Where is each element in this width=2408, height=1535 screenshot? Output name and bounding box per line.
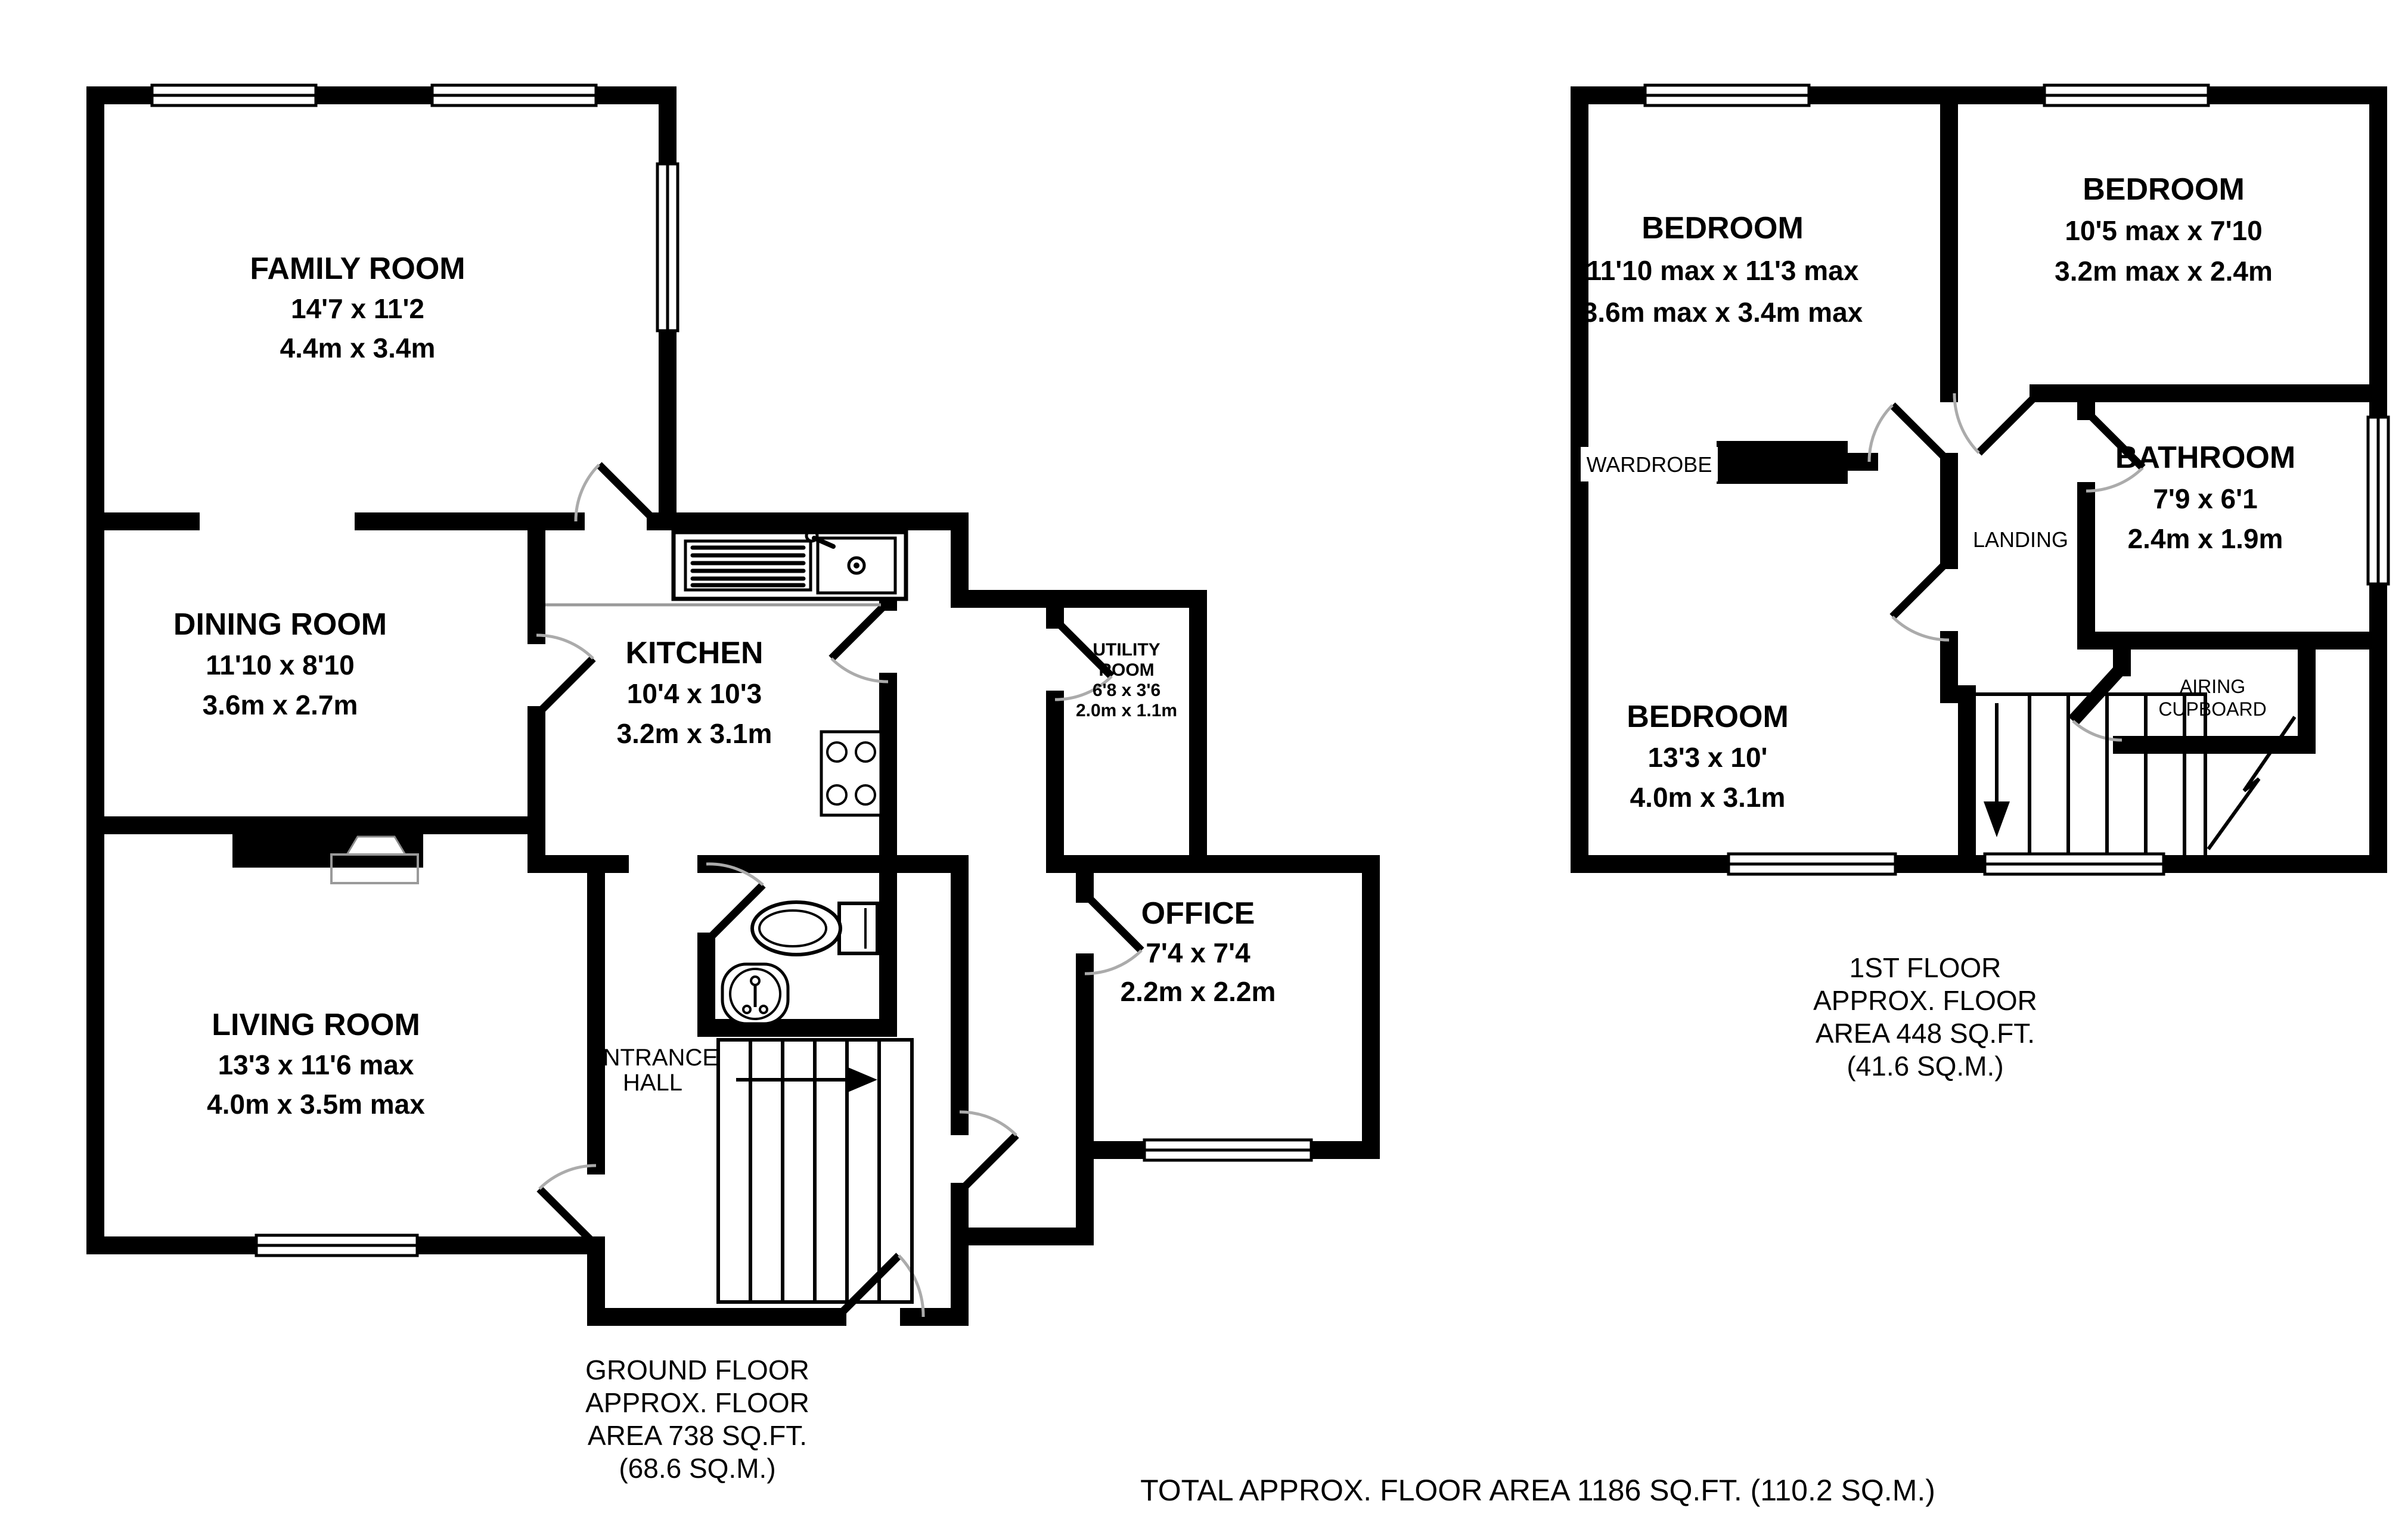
first-floor-caption-line2: APPROX. FLOOR bbox=[1813, 985, 2037, 1016]
family-room-label: FAMILY ROOM bbox=[250, 251, 465, 286]
bedroom1-dims-imperial: 11'10 max x 11'3 max bbox=[1587, 255, 1859, 286]
first-floor-caption-line1: 1ST FLOOR bbox=[1850, 952, 2002, 983]
bedroom2-window bbox=[2044, 85, 2208, 105]
ground-floor-caption-line3: AREA 738 SQ.FT. bbox=[588, 1420, 807, 1451]
ground-floor-caption-line2: APPROX. FLOOR bbox=[585, 1387, 809, 1418]
family-room-window-right bbox=[657, 164, 678, 331]
floor-plan-svg: FAMILY ROOM 14'7 x 11'2 4.4m x 3.4m DINI… bbox=[0, 0, 2408, 1532]
ground-floor-caption-line4: (68.6 SQ.M.) bbox=[619, 1453, 775, 1484]
kitchen-dims-metric: 3.2m x 3.1m bbox=[617, 718, 772, 749]
wardrobe-label: WARDROBE bbox=[1587, 452, 1712, 477]
living-room-label: LIVING ROOM bbox=[212, 1008, 420, 1042]
bedroom3-window bbox=[1729, 854, 1895, 874]
bedroom2-dims-imperial: 10'5 max x 7'10 bbox=[2065, 215, 2262, 246]
family-room-dims-metric: 4.4m x 3.4m bbox=[280, 333, 436, 363]
ground-floor-plan: FAMILY ROOM 14'7 x 11'2 4.4m x 3.4m DINI… bbox=[95, 85, 1371, 1484]
living-room-window bbox=[256, 1235, 417, 1256]
kitchen-dims-imperial: 10'4 x 10'3 bbox=[627, 678, 762, 709]
airing-cupboard-label-line1: AIRING bbox=[2180, 676, 2245, 697]
bathroom-dims-imperial: 7'9 x 6'1 bbox=[2153, 483, 2257, 514]
stairs-down-arrow bbox=[1984, 801, 2010, 837]
entrance-hall-label-line1: ENTRANCE bbox=[587, 1045, 718, 1071]
wardrobe: WARDROBE bbox=[1581, 441, 1848, 484]
bedroom3-label: BEDROOM bbox=[1627, 700, 1789, 734]
bedroom1-window bbox=[1645, 85, 1809, 105]
toilet bbox=[752, 902, 877, 955]
family-room-dims-imperial: 14'7 x 11'2 bbox=[291, 293, 424, 324]
floor-plan-page: FAMILY ROOM 14'7 x 11'2 4.4m x 3.4m DINI… bbox=[0, 0, 2408, 1532]
kitchen-hob bbox=[821, 732, 881, 815]
ground-floor-caption: GROUND FLOOR APPROX. FLOOR AREA 738 SQ.F… bbox=[585, 1354, 809, 1484]
bedroom3-dims-metric: 4.0m x 3.1m bbox=[1630, 782, 1786, 813]
stairwell-window bbox=[1985, 854, 2164, 874]
utility-room-label-line1: UTILITY bbox=[1093, 640, 1160, 660]
kitchen-label: KITCHEN bbox=[625, 636, 763, 670]
landing-label: LANDING bbox=[1973, 527, 2068, 552]
utility-room-label-line2: ROOM bbox=[1099, 660, 1154, 680]
bathroom-window bbox=[2368, 417, 2388, 584]
kitchen-sink bbox=[674, 530, 906, 599]
office-label: OFFICE bbox=[1141, 896, 1255, 931]
ground-floor-caption-line1: GROUND FLOOR bbox=[585, 1354, 809, 1385]
bathroom-area bbox=[2095, 402, 2369, 632]
bedroom1-label: BEDROOM bbox=[1641, 211, 1804, 246]
office-dims-metric: 2.2m x 2.2m bbox=[1121, 976, 1276, 1007]
airing-cupboard-label-line2: CUPBOARD bbox=[2158, 698, 2266, 720]
utility-room-dims-metric: 2.0m x 1.1m bbox=[1076, 701, 1177, 720]
bathroom-label: BATHROOM bbox=[2115, 440, 2295, 475]
bedroom2-label: BEDROOM bbox=[2083, 172, 2245, 207]
family-room-window-top-right bbox=[432, 85, 596, 105]
entrance-hall-label-line2: HALL bbox=[623, 1070, 682, 1096]
office-window bbox=[1144, 1140, 1311, 1160]
office-dims-imperial: 7'4 x 7'4 bbox=[1146, 937, 1250, 968]
total-floor-area-caption: TOTAL APPROX. FLOOR AREA 1186 SQ.FT. (11… bbox=[1140, 1474, 1935, 1507]
wash-basin bbox=[722, 964, 788, 1024]
living-room-dims-metric: 4.0m x 3.5m max bbox=[207, 1089, 425, 1120]
family-room-window-top-left bbox=[152, 85, 316, 105]
bathroom-dims-metric: 2.4m x 1.9m bbox=[2128, 523, 2283, 554]
first-floor-plan: WARDROBE BEDROOM 11'10 max x 11'3 max 3.… bbox=[1580, 85, 2388, 1082]
airing-cupboard-door bbox=[2073, 667, 2122, 740]
bedroom2-dims-metric: 3.2m max x 2.4m bbox=[2055, 256, 2273, 287]
first-floor-caption-line3: AREA 448 SQ.FT. bbox=[1816, 1018, 2035, 1049]
bedroom1-dims-metric: 3.6m max x 3.4m max bbox=[1582, 297, 1863, 328]
living-room-dims-imperial: 13'3 x 11'6 max bbox=[218, 1049, 414, 1080]
first-floor-caption: 1ST FLOOR APPROX. FLOOR AREA 448 SQ.FT. … bbox=[1813, 952, 2037, 1082]
dining-room-dims-imperial: 11'10 x 8'10 bbox=[206, 650, 355, 681]
dining-room-dims-metric: 3.6m x 2.7m bbox=[203, 689, 358, 720]
bedroom3-dims-imperial: 13'3 x 10' bbox=[1648, 742, 1768, 773]
utility-room-dims-imperial: 6'8 x 3'6 bbox=[1093, 681, 1160, 700]
first-floor-caption-line4: (41.6 SQ.M.) bbox=[1847, 1051, 2003, 1082]
dining-room-label: DINING ROOM bbox=[173, 607, 387, 642]
